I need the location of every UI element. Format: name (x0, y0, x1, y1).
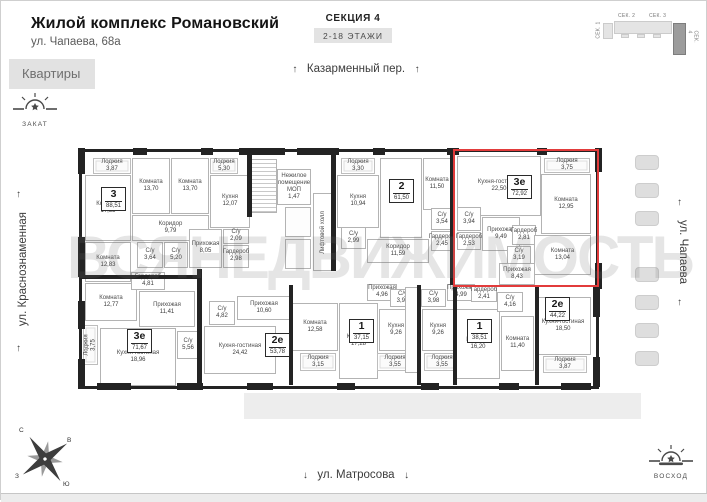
room: Прихожая11,41 (139, 291, 195, 327)
room-name: Кухня (388, 323, 404, 330)
room-area: 11,40 (506, 343, 530, 350)
room-name: Прихожая (250, 301, 278, 308)
apartment-area: 61,50 (393, 193, 410, 201)
apartment-area: 44,22 (549, 311, 566, 319)
room-area: 2,41 (471, 294, 497, 301)
apartment-number: 3 (105, 189, 122, 200)
room-name: С/у (230, 229, 242, 236)
wall-segment (197, 269, 202, 387)
wall-segment (78, 359, 85, 389)
room-area: 11,59 (386, 251, 410, 258)
room: С/у4,16 (497, 292, 523, 312)
room-name: Гардероб (471, 287, 497, 294)
room: Кухня12,07 (210, 175, 250, 228)
room-area: 13,70 (139, 186, 163, 193)
page: { "header": { "title": "Жилой комплекс Р… (0, 0, 707, 500)
room-area: 3,87 (101, 166, 122, 173)
room-name: С/у (182, 338, 194, 345)
wall-segment (499, 383, 519, 390)
wall-segment (417, 285, 421, 385)
apartment-area: 38,51 (471, 333, 488, 341)
room: Лоджия3,30 (341, 158, 375, 174)
room-name: Лифтовой холл (320, 211, 327, 254)
wall-segment (247, 151, 252, 217)
apartment-number: 3е (131, 331, 148, 342)
room-area: 18,96 (117, 357, 159, 364)
room-name: Лоджия (83, 334, 90, 355)
selected-apartment-highlight[interactable] (453, 149, 599, 287)
room: Прихожая8,05 (189, 229, 222, 268)
room: Гардероб2,41 (471, 286, 497, 302)
room: С/у2,09 (223, 229, 249, 244)
room-area: 2,99 (348, 238, 360, 245)
staircase (251, 159, 277, 213)
room: С/у5,20 (164, 242, 188, 268)
room-name: Кухня (222, 194, 238, 201)
room-area: 8,05 (192, 248, 220, 255)
room: Комната13,70 (171, 158, 209, 214)
room-area: 3,64 (144, 255, 156, 262)
elevator-shaft (285, 207, 311, 237)
room-name: Прихожая (192, 241, 220, 248)
apartment-area: 53,78 (269, 347, 286, 355)
wall-segment (373, 148, 385, 155)
wall-segment (331, 151, 336, 271)
room: Кухня10,94 (337, 175, 379, 228)
room: Комната13,70 (132, 158, 170, 214)
room-area: 1,47 (278, 194, 310, 201)
wall-segment (81, 275, 199, 279)
apartment-area: 71,67 (131, 343, 148, 351)
apartment-badge[interactable]: 3е71,67 (127, 329, 152, 353)
room-area: 10,60 (250, 308, 278, 315)
room-name: Кухня-гостиная (219, 343, 261, 350)
room: Комната12,58 (292, 303, 338, 351)
room-area: 3,55 (431, 362, 452, 369)
wall-segment (535, 285, 539, 385)
room: Гардероб2,98 (223, 245, 249, 268)
apartment-number: 2е (269, 335, 286, 346)
room-name: Коридор (386, 244, 410, 251)
room-area: 3,75 (90, 334, 97, 355)
apartment-badge[interactable]: 388,51 (101, 187, 126, 211)
apartment-number: 1 (471, 321, 488, 332)
apartment-badge[interactable]: 2е44,22 (545, 297, 570, 321)
room-area: 3,30 (347, 166, 368, 173)
room: С/у3,98 (421, 289, 446, 307)
room-name: Лоджия (307, 355, 328, 362)
wall-segment (201, 148, 213, 155)
room: Лоджия3,15 (300, 353, 336, 371)
room-name: Комната (425, 177, 449, 184)
room-area: 3,98 (428, 298, 440, 305)
room-area: 12,58 (303, 327, 327, 334)
room-name: Гардероб (223, 249, 249, 256)
room: С/у3,64 (137, 242, 163, 268)
room-name: С/у (144, 248, 156, 255)
room-name: Лоджия (384, 355, 405, 362)
wall-segment (78, 148, 85, 174)
room-name: Лоджия (431, 355, 452, 362)
room-name: С/у (170, 248, 182, 255)
wall-segment (593, 287, 600, 317)
room: Лифтовой холл (313, 193, 333, 271)
apartment-area: 88,51 (105, 201, 122, 209)
room-area: 16,20 (466, 344, 490, 351)
footer-strip (1, 493, 707, 502)
room-area: 12,07 (222, 201, 238, 208)
apartment-badge[interactable]: 261,50 (389, 179, 414, 203)
room: Нежилое помещение МОП1,47 (277, 169, 311, 205)
room-name: Прихожая (153, 302, 181, 309)
room-name: С/у (504, 295, 516, 302)
room-area: 4,82 (216, 313, 228, 320)
room-area: 3,87 (554, 364, 575, 371)
room-name: Коридор (159, 221, 183, 228)
room: С/у2,99 (341, 227, 366, 249)
elevator-shaft (285, 239, 311, 269)
room-name: Комната (96, 255, 120, 262)
room-area: 11,50 (425, 184, 449, 191)
wall-segment (561, 383, 591, 390)
apartment-number: 2е (549, 299, 566, 310)
room-area: 11,41 (153, 309, 181, 316)
room-name: Кухня (350, 194, 366, 201)
room-name: Лоджия (347, 159, 368, 166)
floor-plan: Лоджия3,87Комната13,70Комната13,70Лоджия… (1, 1, 707, 501)
room: Кухня9,26 (422, 309, 454, 351)
wall-segment (133, 148, 147, 155)
room-area: 4,16 (504, 302, 516, 309)
wall-segment (78, 237, 85, 277)
room: Комната11,40 (501, 316, 534, 371)
room: Комната11,50 (423, 158, 451, 210)
room: Лоджия3,87 (93, 158, 131, 174)
room-name: Комната (506, 336, 530, 343)
room-name: С/у (436, 212, 448, 219)
room-name: Комната (303, 320, 327, 327)
wall-segment (78, 301, 85, 329)
room-area: 4,81 (135, 281, 161, 288)
room-name: С/у (216, 306, 228, 313)
room-name: Лоджия (101, 159, 122, 166)
room-name: С/у (348, 231, 360, 238)
apartment-badge[interactable]: 2е53,78 (265, 333, 290, 357)
wall-segment (421, 383, 439, 390)
room-name: Комната (178, 179, 202, 186)
room-name: Лоджия (213, 159, 234, 166)
room-name: Комната (139, 179, 163, 186)
room: С/у4,82 (209, 301, 235, 325)
room: Комната12,77 (85, 283, 137, 321)
room-area: 3,55 (384, 362, 405, 369)
room-area: 12,77 (99, 302, 123, 309)
room-area: 12,83 (96, 262, 120, 269)
room-area: 24,42 (219, 350, 261, 357)
room-area: 5,56 (182, 345, 194, 352)
room-area: 13,70 (178, 186, 202, 193)
apartment-badge[interactable]: 138,51 (467, 319, 492, 343)
room: Лоджия3,87 (543, 356, 587, 373)
apartment-number: 2 (393, 181, 410, 192)
room-area: 9,26 (430, 330, 446, 337)
room-name: Лоджия (554, 357, 575, 364)
room-area: 3,15 (307, 362, 328, 369)
room: Коридор11,59 (367, 239, 429, 263)
room-area: 9,26 (388, 330, 404, 337)
room: Прихожая10,60 (237, 296, 291, 320)
room-name: С/у (428, 291, 440, 298)
room-area: 9,79 (159, 228, 183, 235)
room-area: 5,30 (213, 166, 234, 173)
apartment-badge[interactable]: 137,15 (349, 319, 374, 343)
room-area: 18,50 (542, 326, 584, 333)
room-area: 3,54 (436, 219, 448, 226)
room-area: 2,98 (223, 256, 249, 263)
room-name: Кухня (430, 323, 446, 330)
wall-segment (337, 383, 355, 390)
room: Лоджия5,30 (210, 158, 238, 174)
room-name: Нежилое помещение МОП (278, 173, 310, 194)
room-name: Комната (99, 295, 123, 302)
room: С/у5,56 (177, 331, 199, 359)
wall-segment (239, 148, 285, 155)
apartment-area: 37,15 (353, 333, 370, 341)
wall-segment (97, 383, 131, 390)
wall-segment (247, 383, 273, 390)
apartment-number: 1 (353, 321, 370, 332)
wall-segment (593, 357, 600, 387)
room-area: 5,20 (170, 255, 182, 262)
room-area: 2,09 (230, 236, 242, 243)
room-area: 10,94 (350, 201, 366, 208)
room: Лоджия3,75 (83, 325, 98, 365)
wall-segment (453, 285, 457, 385)
